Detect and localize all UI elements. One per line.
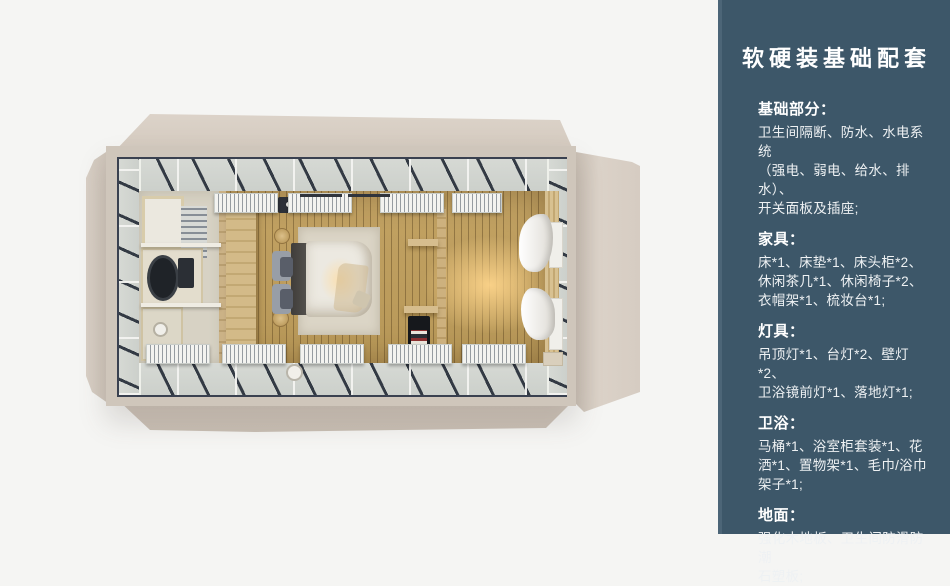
louver-panel: [146, 344, 210, 364]
slide: 软硬装基础配套 基础部分： 卫生间隔断、防水、水电系统 （强电、弱电、给水、排水…: [0, 0, 950, 534]
sink-basin: [147, 255, 179, 301]
section-basics: 基础部分： 卫生间隔断、防水、水电系统 （强电、弱电、给水、排水）、 开关面板及…: [758, 100, 934, 218]
woven-basket: [274, 228, 290, 244]
section-flooring: 地面： 强化木地板、卫生间防滑防潮 石塑板;: [758, 506, 934, 586]
bathroom-closet: [142, 196, 184, 248]
section-heading: 家具：: [758, 230, 934, 250]
brace-deck-top: [119, 159, 565, 193]
ceiling-rail: [348, 194, 390, 197]
spec-sidebar: 软硬装基础配套 基础部分： 卫生间隔断、防水、水电系统 （强电、弱电、给水、排水…: [718, 0, 950, 534]
wall-shelf: [408, 239, 438, 246]
louver-panel: [300, 344, 364, 364]
section-body: 吊顶灯*1、台灯*2、壁灯*2、 卫浴镜前灯*1、落地灯*1;: [758, 345, 934, 402]
section-bathroom: 卫浴： 马桶*1、浴室柜套装*1、花 洒*1、置物架*1、毛巾/浴巾 架子*1;: [758, 414, 934, 494]
louver-panel: [388, 344, 452, 364]
brace-deck-left: [119, 159, 141, 395]
section-heading: 地面：: [758, 506, 934, 526]
wall-shelf: [404, 306, 438, 313]
section-heading: 基础部分：: [758, 100, 934, 120]
section-body: 卫生间隔断、防水、水电系统 （强电、弱电、给水、排水）、 开关面板及插座;: [758, 123, 934, 218]
headboard-console: [226, 198, 256, 350]
page-title: 软硬装基础配套: [742, 44, 934, 74]
vanity-tray: [178, 258, 194, 288]
roof-flap-right: [576, 146, 640, 412]
curtain: [521, 288, 555, 340]
divider-wall: [437, 207, 446, 357]
louver-panel: [462, 344, 526, 364]
louver-panel: [452, 193, 502, 213]
section-lighting: 灯具： 吊顶灯*1、台灯*2、壁灯*2、 卫浴镜前灯*1、落地灯*1;: [758, 322, 934, 402]
section-body: 强化木地板、卫生间防滑防潮 石塑板;: [758, 529, 934, 586]
louver-panel: [214, 193, 278, 213]
brace-deck-bottom: [119, 361, 565, 395]
section-body: 马桶*1、浴室柜套装*1、花 洒*1、置物架*1、毛巾/浴巾 架子*1;: [758, 437, 934, 494]
accent-pillow: [280, 289, 293, 309]
bathroom-shelf: [141, 303, 221, 307]
section-furniture: 家具： 床*1、床垫*1、床头柜*2、 休闲茶几*1、休闲椅子*2、 衣帽架*1…: [758, 230, 934, 310]
section-heading: 灯具：: [758, 322, 934, 342]
toilet: [153, 322, 168, 337]
bathroom-partition-wall: [219, 191, 226, 363]
louver-panel: [222, 344, 286, 364]
ceiling-rail: [300, 194, 342, 197]
accent-pillow: [280, 257, 293, 277]
section-heading: 卫浴：: [758, 414, 934, 434]
section-body: 床*1、床垫*1、床头柜*2、 休闲茶几*1、休闲椅子*2、 衣帽架*1、梳妆台…: [758, 253, 934, 310]
floorplan-render: [0, 0, 718, 534]
bathroom-shelf: [141, 243, 221, 247]
side-table: [543, 352, 563, 366]
floor-stool: [286, 364, 303, 381]
